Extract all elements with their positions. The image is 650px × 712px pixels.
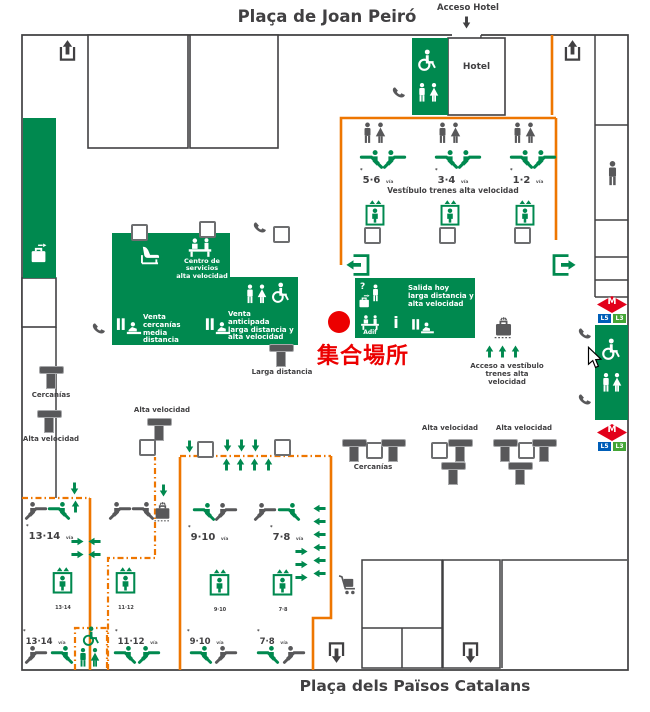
right-arrow-icon (295, 559, 308, 570)
escalator-up-icon (457, 148, 483, 170)
escalator-down-icon (508, 148, 534, 170)
left-arrow-icon (313, 568, 326, 579)
male-icon (362, 122, 373, 145)
alta-velocidad-mid-2-label: Alta velocidad (492, 425, 556, 433)
gate-icon (532, 439, 556, 464)
pillar (274, 439, 291, 456)
mouse-cursor (587, 346, 602, 370)
female-icon (612, 372, 622, 394)
up-arrow-icon (510, 345, 521, 358)
platform-label-5-6: *5·6 vía (360, 168, 393, 187)
female-icon (90, 647, 100, 669)
page-title-bottom: Plaça dels Països Catalans (290, 677, 540, 695)
platform-label-1-2: *1·2 vía (510, 168, 543, 187)
down-arrow-icon (250, 439, 261, 452)
male-icon (78, 647, 88, 669)
platform-label-7-8: *7·8 vía (270, 525, 303, 544)
line3-badge: L3 (613, 442, 626, 451)
pillar (131, 224, 148, 241)
left-arrow-icon (313, 516, 326, 527)
gate-icon (441, 462, 465, 487)
pillar (199, 221, 216, 238)
escalator-down-icon (253, 501, 278, 522)
escalator-down-icon (137, 644, 162, 665)
meeting-point-label: 集合場所 (317, 338, 409, 370)
up-arrow-icon (235, 458, 246, 471)
up-arrow-icon (221, 458, 232, 471)
down-arrow-icon (158, 484, 169, 497)
elevator-icon (114, 566, 137, 594)
right-arrow-icon (295, 572, 308, 583)
station-map: Plaça de Joan Peiró Acceso Hotel Plaça d… (0, 0, 650, 712)
pillar (364, 227, 381, 244)
lost-found-icon: ? (360, 282, 365, 292)
pillar (439, 227, 456, 244)
person-icon (606, 161, 619, 187)
elevator-icon (439, 199, 461, 226)
escalator-down-icon (214, 644, 239, 665)
lounge-chair-icon (139, 245, 161, 267)
suitcase-icon (357, 294, 372, 308)
metro-m: M (597, 425, 627, 435)
pillar (273, 226, 290, 243)
right-arrow-icon (295, 546, 308, 557)
gate-icon (342, 439, 366, 464)
trolley-icon (337, 574, 357, 596)
acceso-hotel-label: Acceso Hotel (433, 3, 503, 13)
elevator-label-11-12: 11·12 (109, 594, 143, 613)
down-arrow-icon (461, 16, 472, 29)
elevator-icon (514, 199, 536, 226)
ticket-office-icon (116, 317, 142, 336)
male-icon (437, 122, 448, 145)
gate-icon (381, 439, 405, 464)
centro-servicios-label: Centro de servicios alta velocidad (168, 258, 236, 280)
escalator-up-icon (49, 644, 74, 665)
service-desk-icon (187, 238, 213, 257)
male-icon (512, 122, 523, 145)
wheelchair-icon (80, 626, 100, 646)
pillar (139, 439, 156, 456)
down-arrow-icon (236, 439, 247, 452)
right-arrow-icon (71, 549, 84, 560)
service-desk-icon (359, 315, 381, 330)
escalator-up-icon (382, 148, 408, 170)
escalator-up-icon (188, 644, 213, 665)
female-icon (375, 122, 386, 145)
escalator-down-icon (433, 148, 459, 170)
left-arrow-icon (313, 542, 326, 553)
escalator-down-icon (282, 644, 307, 665)
female-icon (525, 122, 536, 145)
right-arrow-icon (71, 536, 84, 547)
down-arrow-icon (222, 439, 233, 452)
pillar (197, 441, 214, 458)
escalator-up-icon (532, 148, 558, 170)
page-title-top: Plaça de Joan Peiró (227, 7, 427, 26)
salida-hoy-label: Salida hoy larga distancia y alta veloci… (408, 285, 474, 308)
gate-icon (448, 439, 472, 464)
elevator-icon (364, 199, 386, 226)
ticket-office-icon (411, 318, 435, 335)
escalator-down-icon (358, 148, 384, 170)
left-arrow-icon (313, 529, 326, 540)
venta-anticipada-label: Venta anticipada larga distancia y alta … (228, 311, 294, 342)
wheelchair-icon (415, 49, 437, 71)
gate-icon (269, 344, 293, 369)
elevator-label-9-10: 9·10 (203, 596, 237, 615)
platform-label-3-4: *3·4 vía (435, 168, 468, 187)
elevator-icon (51, 566, 74, 594)
elevator-icon (208, 568, 231, 596)
line5-badge: L5 (598, 442, 611, 451)
female-icon (450, 122, 461, 145)
wheelchair-icon (269, 282, 290, 303)
down-arrow-icon (184, 440, 195, 453)
left-arrow-icon (313, 555, 326, 566)
person-icon (371, 283, 380, 304)
cercanias-left-label: Cercanías (22, 392, 80, 400)
up-arrow-icon (497, 345, 508, 358)
venta-cercanias-label: Venta cercanías media distancia (143, 314, 205, 345)
metro-m: M (597, 297, 627, 307)
male-icon (601, 372, 611, 394)
down-arrow-icon (69, 482, 80, 495)
alta-velocidad-mid-1-label: Alta velocidad (419, 425, 481, 433)
left-arrow-icon (88, 536, 101, 547)
up-arrow-icon (70, 500, 81, 513)
female-icon (429, 81, 439, 105)
info-icon: i (390, 313, 402, 332)
escalator-up-icon (276, 501, 301, 522)
wheelchair-icon (599, 338, 621, 360)
exit-door-left-icon (344, 254, 370, 276)
escalator-up-icon (255, 644, 280, 665)
platform-label-9-10: *9·10 vía (188, 525, 228, 544)
luggage-storage-icon (28, 242, 50, 264)
alta-velocidad-center-label: Alta velocidad (131, 407, 193, 415)
escalator-up-icon (112, 644, 137, 665)
entrance-icon (327, 641, 346, 664)
male-icon (245, 283, 255, 306)
gate-icon (493, 439, 517, 464)
escalator-down-icon (24, 644, 49, 665)
left-arrow-icon (313, 503, 326, 514)
escalator-up-icon (191, 501, 216, 522)
exit-icon (563, 39, 582, 62)
acceso-vestibulo-label: Acceso a vestíbulo trenes alta velocidad (466, 363, 548, 386)
gate-icon (39, 366, 63, 391)
pillar (431, 442, 448, 459)
security-scanner-icon (152, 500, 173, 523)
escalator-up-icon (46, 500, 71, 521)
exit-icon (58, 39, 77, 62)
gate-icon (508, 462, 532, 487)
female-icon (257, 283, 267, 306)
larga-distancia-label: Larga distancia (250, 369, 314, 377)
exit-door-right-icon (552, 254, 578, 276)
up-arrow-icon (249, 458, 260, 471)
hotel-label: Hotel (448, 62, 505, 72)
male-icon (417, 81, 427, 105)
adif-label: Adif (357, 329, 383, 336)
alta-velocidad-left-label: Alta velocidad (18, 436, 84, 444)
up-arrow-icon (263, 458, 274, 471)
elevator-icon (271, 568, 294, 596)
cercanias-mid-label: Cercanías (338, 464, 408, 472)
left-arrow-icon (88, 549, 101, 560)
meeting-point-marker (328, 311, 350, 333)
line5-badge: L5 (598, 314, 611, 323)
gate-icon (37, 410, 61, 435)
pillar (514, 227, 531, 244)
entrance-icon (461, 641, 480, 664)
vestibulo-label: Vestíbulo trenes alta velocidad (373, 187, 533, 195)
line3-badge: L3 (613, 314, 626, 323)
platform-label-13-14: *13·14 vía (26, 524, 73, 543)
security-scanner-icon (492, 315, 515, 340)
up-arrow-icon (484, 345, 495, 358)
elevator-label-13-14: 13·14 (46, 594, 80, 613)
elevator-label-7-8: 7·8 (266, 596, 300, 615)
escalator-down-icon (214, 501, 239, 522)
